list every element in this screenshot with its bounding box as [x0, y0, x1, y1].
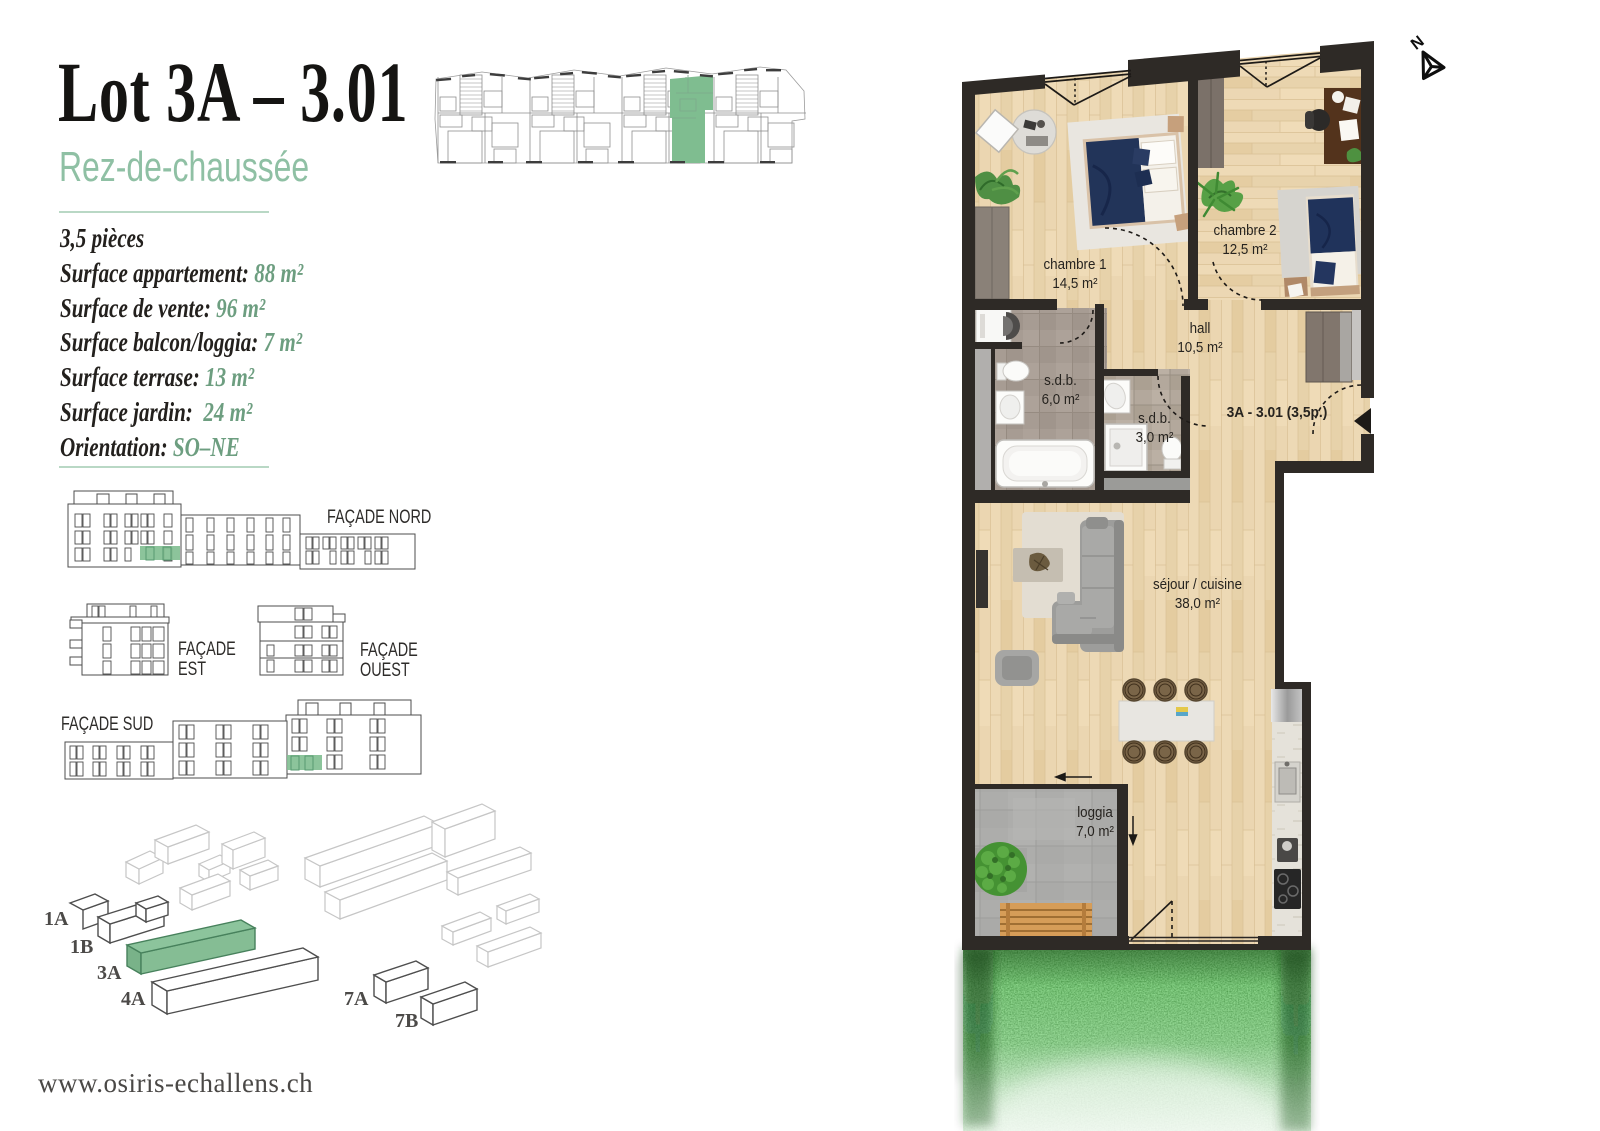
- svg-text:N: N: [1408, 33, 1428, 54]
